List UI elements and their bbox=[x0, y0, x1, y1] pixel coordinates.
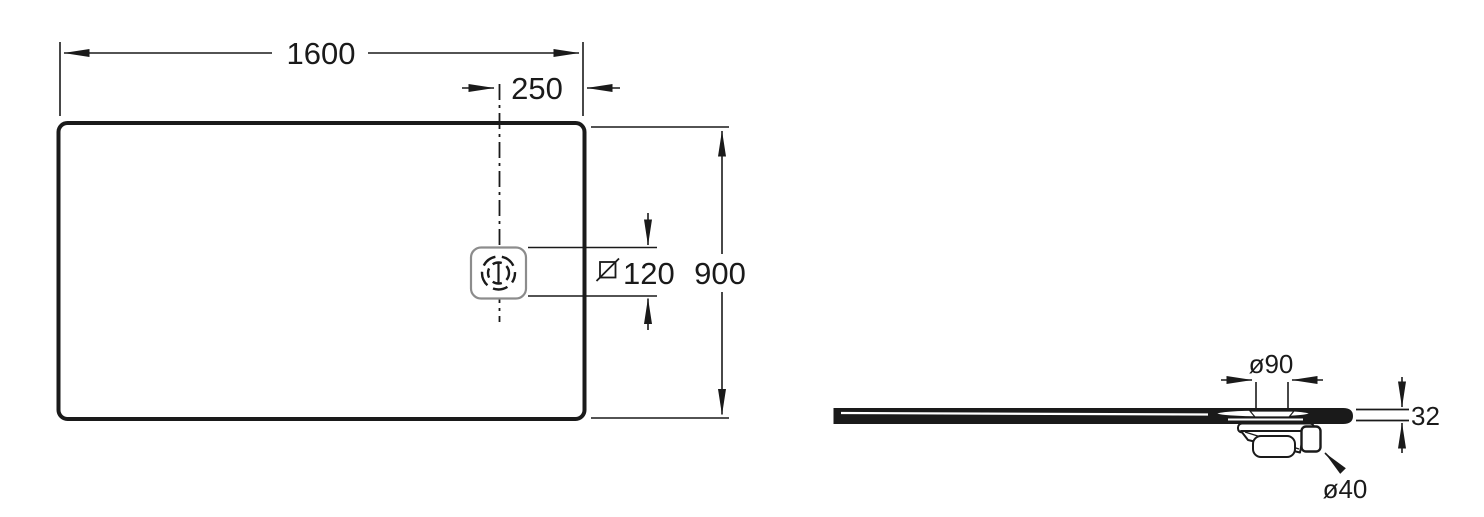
side-view: ø90 32 ø40 bbox=[834, 349, 1440, 504]
tray-profile bbox=[834, 409, 1353, 424]
dim-height-label: 900 bbox=[694, 256, 746, 291]
drain-icon bbox=[471, 248, 526, 299]
dim-thickness-label: 32 bbox=[1411, 401, 1440, 431]
dim-drain-diameter-label: ø90 bbox=[1249, 349, 1294, 379]
dim-outlet-diameter-40: ø40 bbox=[1323, 453, 1368, 504]
drawing-canvas: 1600 250 120 bbox=[0, 0, 1484, 517]
trap-cup bbox=[1253, 436, 1295, 457]
square-symbol-icon bbox=[597, 259, 620, 282]
dim-outlet-diameter-label: ø40 bbox=[1323, 474, 1368, 504]
dim-drain-diameter-90: ø90 bbox=[1221, 349, 1323, 408]
dim-drain-square-label: 120 bbox=[623, 256, 675, 291]
dim-drain-offset-label: 250 bbox=[511, 71, 563, 106]
dim-drain-offset-250: 250 bbox=[462, 71, 620, 106]
drain-trap bbox=[1238, 424, 1321, 458]
plan-view: 1600 250 120 bbox=[59, 36, 746, 419]
dim-width-1600: 1600 bbox=[60, 36, 583, 116]
drain-flange bbox=[1250, 411, 1294, 417]
technical-drawing: 1600 250 120 bbox=[0, 0, 1484, 517]
leader-arrow bbox=[1325, 453, 1342, 470]
dim-thickness-32: 32 bbox=[1356, 377, 1440, 453]
tray-surface-line bbox=[841, 413, 1208, 415]
trap-outlet-cap bbox=[1302, 427, 1321, 452]
dim-width-label: 1600 bbox=[287, 36, 356, 71]
